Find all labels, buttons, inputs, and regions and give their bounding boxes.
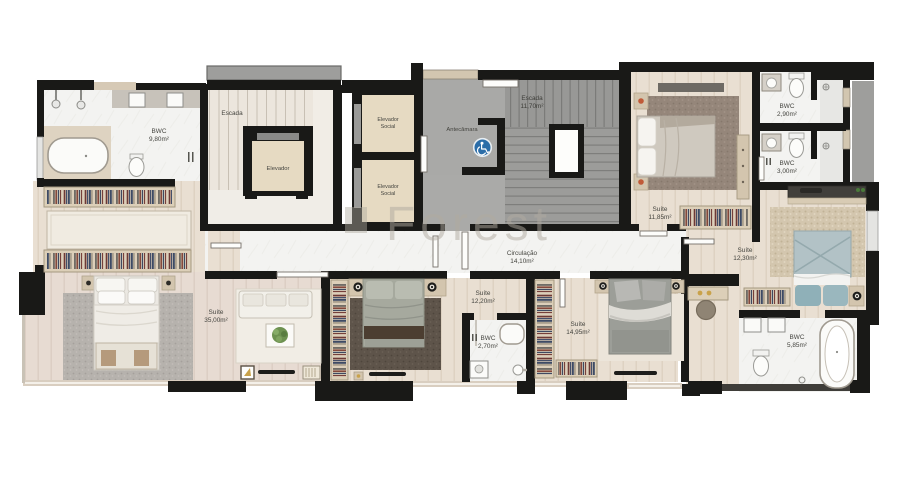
svg-text:BWC: BWC — [152, 128, 167, 135]
svg-text:11,85m²: 11,85m² — [649, 214, 672, 221]
svg-text:Suíte: Suíte — [571, 321, 586, 328]
svg-text:Escada: Escada — [521, 95, 543, 102]
svg-text:12,20m²: 12,20m² — [471, 298, 494, 305]
svg-text:2,70m²: 2,70m² — [478, 343, 498, 350]
svg-text:11,70m²: 11,70m² — [521, 103, 544, 110]
svg-text:Circulação: Circulação — [507, 250, 538, 257]
svg-text:BWC: BWC — [780, 103, 795, 110]
svg-text:Suíte: Suíte — [738, 247, 753, 254]
svg-text:Elevador: Elevador — [267, 166, 290, 172]
svg-text:BWC: BWC — [481, 335, 496, 342]
svg-text:Elevador: Elevador — [377, 117, 398, 123]
svg-text:Suíte: Suíte — [209, 309, 224, 316]
svg-text:Social: Social — [381, 191, 396, 197]
svg-text:2,90m²: 2,90m² — [777, 111, 797, 118]
svg-text:Social: Social — [381, 124, 396, 130]
svg-text:Suíte: Suíte — [476, 290, 491, 297]
svg-text:Antecâmara: Antecâmara — [446, 127, 478, 133]
svg-text:14,10m²: 14,10m² — [510, 258, 533, 265]
svg-text:12,30m²: 12,30m² — [733, 255, 756, 262]
svg-text:BWC: BWC — [780, 160, 795, 167]
svg-text:14,95m²: 14,95m² — [566, 329, 589, 336]
svg-text:3,00m²: 3,00m² — [777, 168, 797, 175]
svg-text:35,00m²: 35,00m² — [204, 317, 227, 324]
svg-text:9,80m²: 9,80m² — [149, 136, 169, 143]
svg-text:Suíte: Suíte — [653, 206, 668, 213]
svg-text:5,85m²: 5,85m² — [787, 342, 807, 349]
svg-text:Escada: Escada — [221, 110, 243, 117]
svg-text:Elevador: Elevador — [377, 184, 398, 190]
svg-text:BWC: BWC — [790, 334, 805, 341]
svg-text:Forest: Forest — [386, 198, 552, 251]
